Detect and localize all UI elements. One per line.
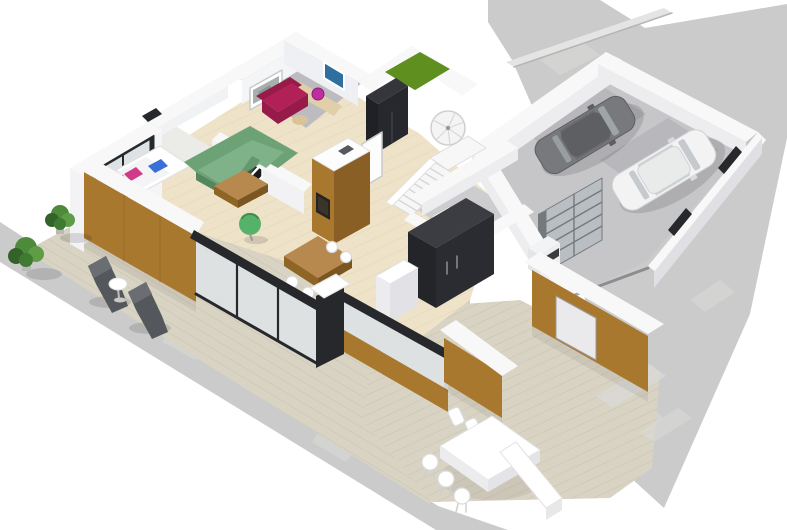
dining-chair-white	[327, 242, 338, 253]
floorplan-render	[0, 0, 787, 530]
office-chair-magenta	[312, 88, 324, 100]
dining-chair-white	[341, 252, 352, 263]
fireplace-island-wood	[312, 138, 370, 244]
spiral-pole	[446, 126, 450, 130]
ottoman-tan	[292, 115, 308, 125]
staircase-spiral	[431, 111, 465, 145]
floorplan-svg	[0, 0, 787, 530]
